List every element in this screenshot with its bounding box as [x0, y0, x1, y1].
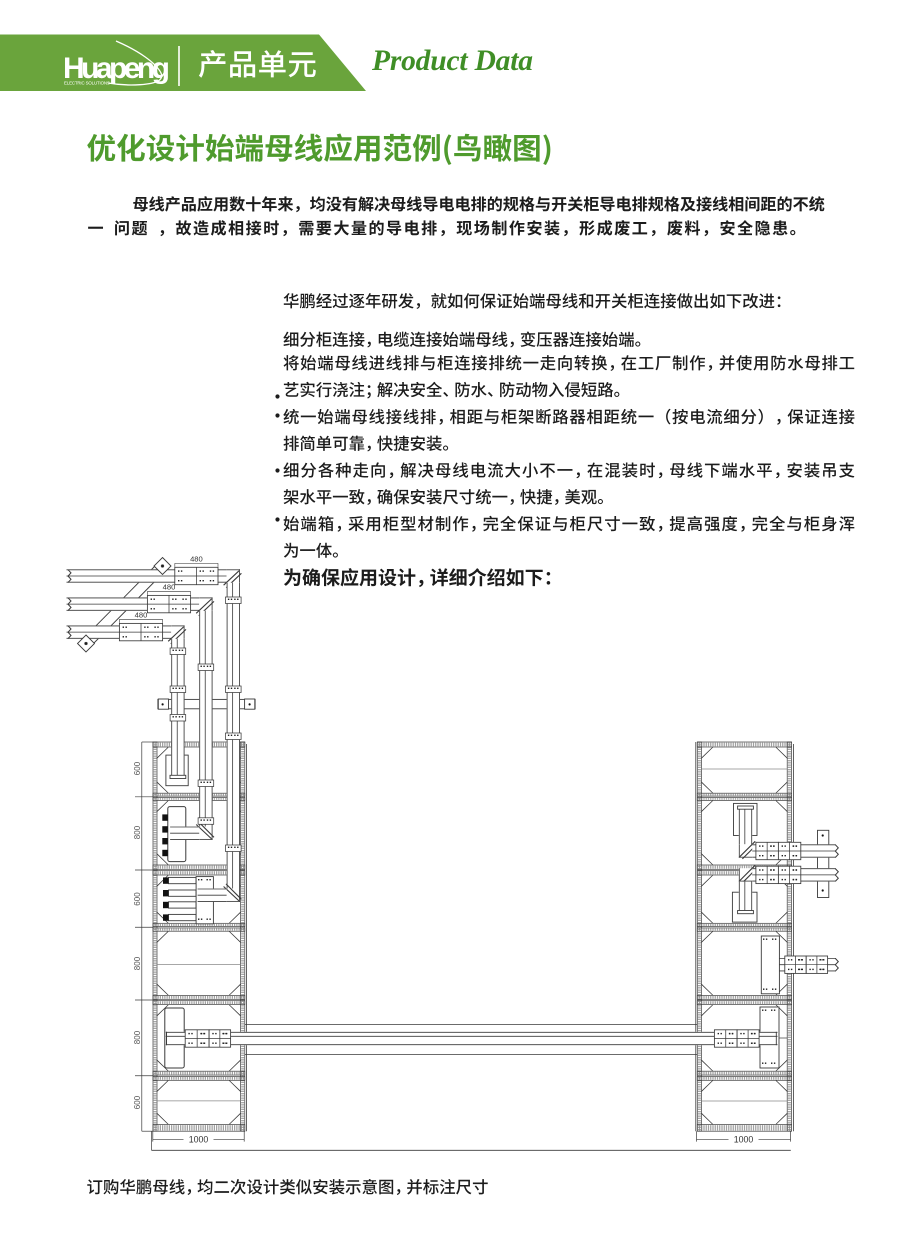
svg-text:480: 480: [163, 583, 176, 592]
svg-text:480: 480: [135, 611, 148, 620]
svg-text:1000: 1000: [734, 1134, 754, 1144]
svg-text:800: 800: [133, 825, 142, 839]
svg-text:1000: 1000: [189, 1134, 209, 1144]
svg-text:800: 800: [133, 1030, 142, 1044]
svg-text:600: 600: [133, 761, 142, 775]
svg-text:480: 480: [190, 555, 203, 564]
svg-text:600: 600: [133, 1095, 142, 1109]
svg-text:800: 800: [133, 956, 142, 970]
svg-text:ELECTRIC SOLUTIONS: ELECTRIC SOLUTIONS: [64, 81, 110, 86]
svg-text:Product Data: Product Data: [371, 45, 533, 77]
svg-text:600: 600: [133, 892, 142, 906]
